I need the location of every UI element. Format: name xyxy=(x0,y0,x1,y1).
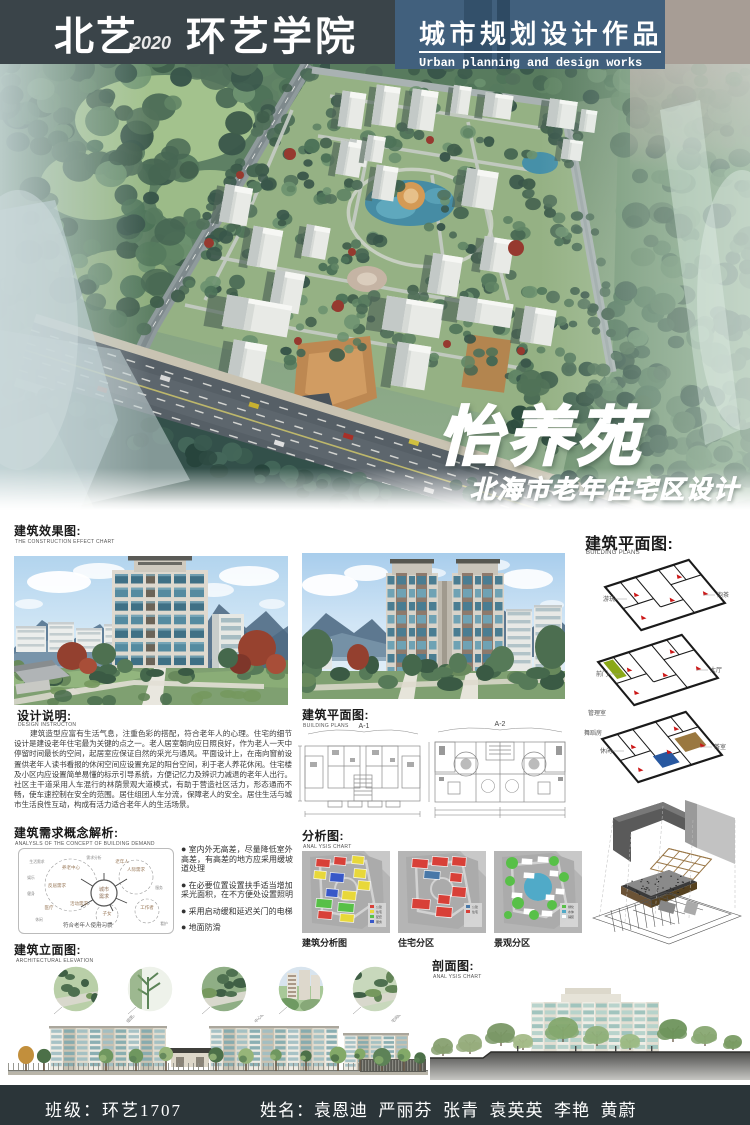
svg-text:A-2: A-2 xyxy=(495,721,506,728)
svg-text:水体: 水体 xyxy=(568,909,574,914)
svg-text:住宅: 住宅 xyxy=(472,909,478,914)
svg-text:管理室: 管理室 xyxy=(588,709,606,717)
svg-text:需求: 需求 xyxy=(99,893,109,900)
svg-text:城市: 城市 xyxy=(99,886,109,893)
svg-text:娱乐: 娱乐 xyxy=(27,875,35,880)
svg-text:老年人: 老年人 xyxy=(115,858,129,865)
svg-text:中心绿地: 中心绿地 xyxy=(252,1015,268,1024)
svg-text:前门: 前门 xyxy=(596,670,608,678)
svg-text:工作者: 工作者 xyxy=(140,904,154,911)
svg-text:公建: 公建 xyxy=(472,904,478,909)
svg-text:宅间绿地: 宅间绿地 xyxy=(389,1015,405,1024)
svg-text:服务: 服务 xyxy=(155,885,163,890)
svg-text:生活需求: 生活需求 xyxy=(29,859,44,864)
svg-text:大厅: 大厅 xyxy=(710,666,722,674)
svg-text:活动需求: 活动需求 xyxy=(70,900,88,907)
svg-text:茶室: 茶室 xyxy=(714,743,726,751)
svg-text:医疗: 医疗 xyxy=(45,904,54,911)
svg-text:绿化: 绿化 xyxy=(568,904,574,909)
svg-text:养老中心: 养老中心 xyxy=(62,864,80,871)
svg-text:配套: 配套 xyxy=(376,914,382,919)
svg-text:看护: 看护 xyxy=(160,921,168,926)
svg-text:铺装: 铺装 xyxy=(568,914,574,919)
svg-text:住宅: 住宅 xyxy=(376,909,382,914)
svg-text:人际需求: 人际需求 xyxy=(127,866,145,873)
svg-text:A-1: A-1 xyxy=(359,723,370,730)
svg-text:休闲: 休闲 xyxy=(35,917,43,922)
svg-text:健身: 健身 xyxy=(27,891,35,896)
svg-text:子女: 子女 xyxy=(103,910,112,917)
svg-text:服务: 服务 xyxy=(376,919,382,924)
svg-text:需求分析: 需求分析 xyxy=(86,855,101,860)
svg-text:舞蹈房: 舞蹈房 xyxy=(584,729,602,737)
svg-text:组团入口: 组团入口 xyxy=(124,1015,140,1024)
svg-text:公建: 公建 xyxy=(376,904,382,909)
svg-text:休闲: 休闲 xyxy=(600,747,612,755)
svg-text:游玩: 游玩 xyxy=(603,595,615,603)
svg-text:泡茶: 泡茶 xyxy=(717,591,729,599)
svg-text:符合老年人使用习惯: 符合老年人使用习惯 xyxy=(63,921,113,929)
svg-text:反居需求: 反居需求 xyxy=(48,882,66,889)
